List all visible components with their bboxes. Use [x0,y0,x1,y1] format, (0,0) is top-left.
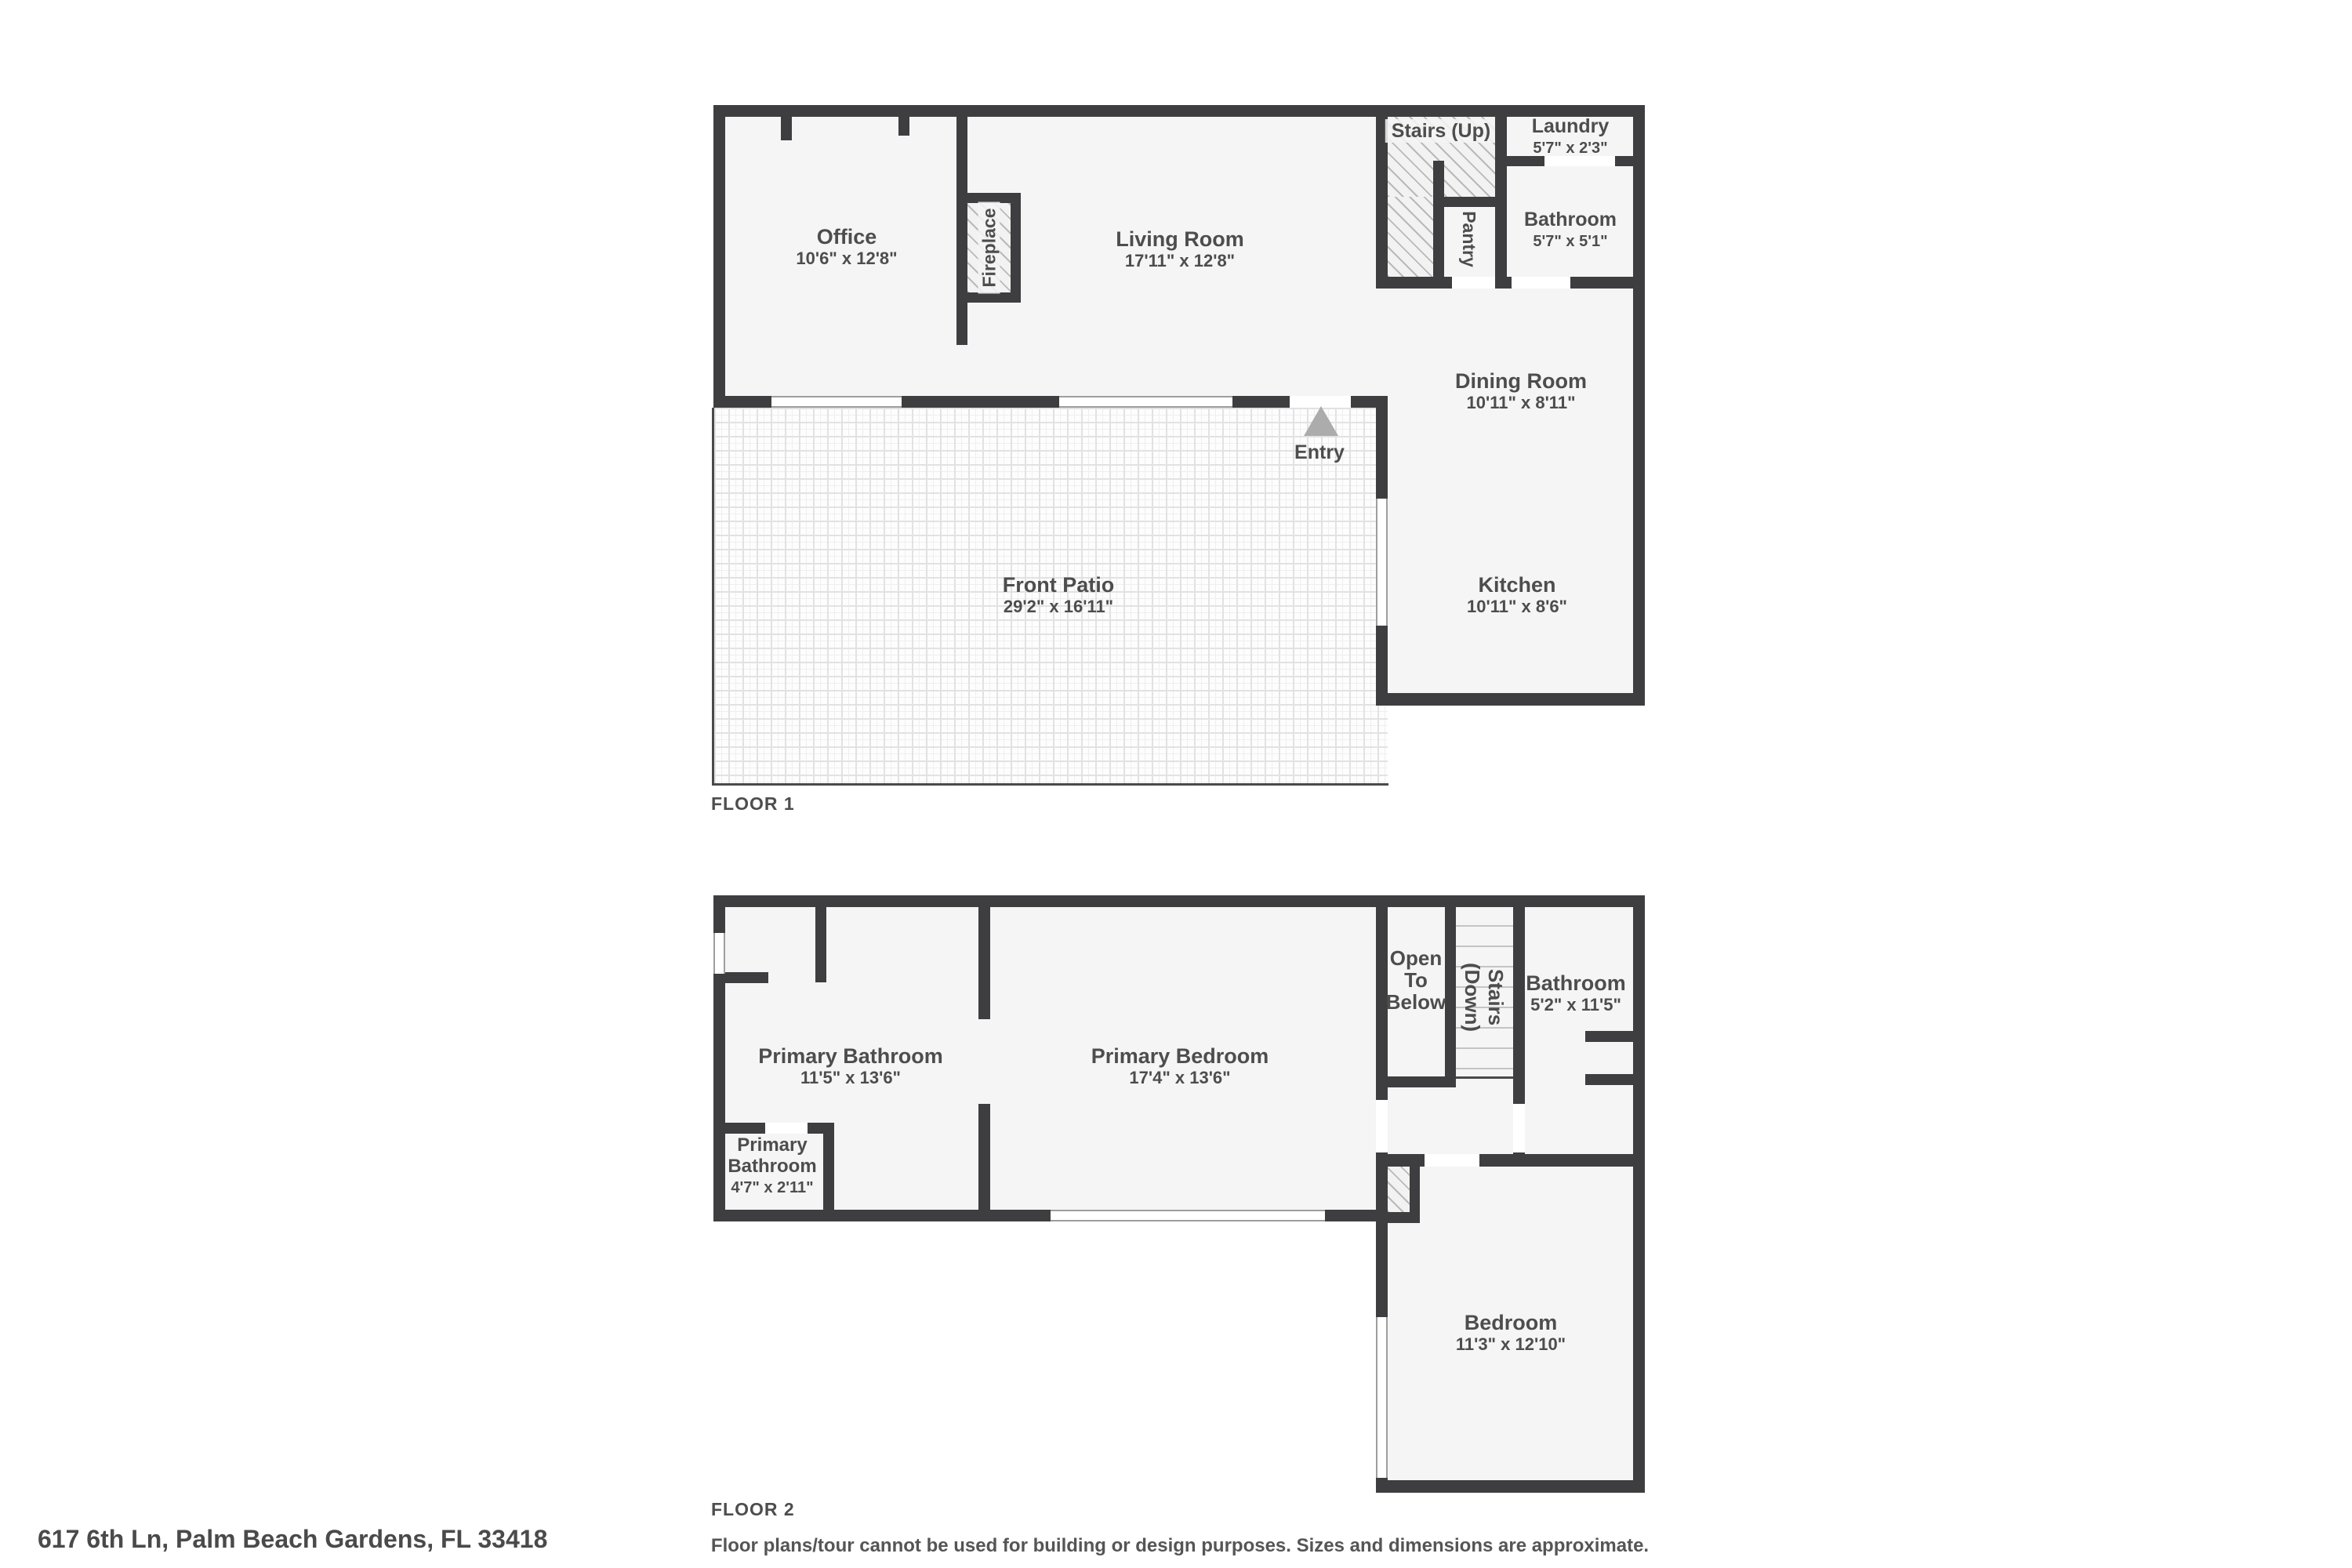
floor1-title: FLOOR 1 [711,793,795,815]
bathroom-door-opening [1512,277,1570,289]
office-name: Office [796,226,897,248]
patio-left-edge [712,408,714,785]
disclaimer-text: Floor plans/tour cannot be used for buil… [711,1535,1649,1557]
wall [1388,1076,1456,1087]
window [771,396,902,408]
window [1376,1317,1388,1478]
kitchen-name: Kitchen [1467,574,1567,596]
wall [815,907,826,982]
bedroom-name: Bedroom [1456,1312,1566,1334]
room-label-kitchen: Kitchen 10'11" x 8'6" [1467,574,1567,618]
wall [713,105,725,408]
wall [1376,1480,1645,1493]
wall [713,974,725,1221]
small-bath-line2: Bathroom [728,1156,816,1177]
stairs-down-line1: Stairs [1484,963,1508,1032]
bedroom-chimney-hatch [1388,1167,1410,1212]
laundry-name: Laundry [1532,115,1610,137]
room-label-office: Office 10'6" x 12'8" [796,226,897,270]
kitchen-dims: 10'11" x 8'6" [1467,596,1567,618]
stairs-bottom-edge [1456,1076,1513,1079]
room-label-bedroom: Bedroom 11'3" x 12'10" [1456,1312,1566,1356]
floor2-title: FLOOR 2 [711,1499,795,1520]
wall [1445,907,1456,1087]
wall [713,895,725,933]
wall [1495,277,1512,289]
wall [1615,156,1633,166]
fireplace-label: Fireplace [979,202,1000,294]
front-patio-dims: 29'2" x 16'11" [1003,596,1115,618]
room-label-bathroom-f1: Bathroom 5'7" x 5'1" [1524,209,1617,252]
entry-arrow-icon [1304,406,1338,436]
bathroom-f2-name: Bathroom [1526,972,1626,994]
otb-line2: To [1386,969,1446,991]
stairs-down-label: Stairs (Down) [1461,963,1508,1032]
bathroom-f2-dims: 5'2" x 11'5" [1526,994,1626,1016]
wall [725,972,768,983]
wall [1376,277,1452,289]
stair-tread [1456,1047,1513,1049]
small-bath-line1: Primary [728,1134,816,1156]
wall [1433,161,1444,277]
window [1051,1210,1325,1221]
stair-tread [1456,925,1513,927]
window [1059,396,1232,408]
primary-bedroom-name: Primary Bedroom [1091,1045,1269,1067]
property-address: 617 6th Ln, Palm Beach Gardens, FL 33418 [38,1525,547,1554]
room-label-laundry: Laundry 5'7" x 2'3" [1532,115,1610,159]
small-bath-door-opening [765,1123,808,1134]
room-label-front-patio: Front Patio 29'2" x 16'11" [1003,574,1115,618]
wall [1633,105,1645,706]
otb-line3: Below [1386,991,1446,1013]
wall [978,1104,990,1221]
wall [1633,895,1645,1493]
front-patio-name: Front Patio [1003,574,1115,596]
fireplace-side [1011,193,1021,303]
room-label-dining-room: Dining Room 10'11" x 8'11" [1455,370,1587,414]
wall [713,396,771,408]
wall [1232,396,1290,408]
stair-tread [1456,946,1513,947]
living-room-dims: 17'11" x 12'8" [1116,250,1244,272]
wall [1570,277,1633,289]
primary-bathroom-dims: 11'5" x 13'6" [758,1067,943,1089]
wall [713,1123,765,1134]
small-bath-dims: 4'7" x 2'11" [728,1177,816,1199]
wall [1479,1154,1645,1167]
room-label-small-primary-bathroom: Primary Bathroom 4'7" x 2'11" [728,1134,816,1199]
room-label-primary-bathroom: Primary Bathroom 11'5" x 13'6" [758,1045,943,1089]
living-room-name: Living Room [1116,228,1244,250]
floorplan-canvas: Fireplace Stairs (Up) Pantry Office 10'6… [0,0,2352,1568]
pantry-door-opening [1452,277,1495,289]
dining-room-dims: 10'11" x 8'11" [1455,392,1587,414]
bedroom-door-opening [1425,1154,1479,1167]
primary-bedroom-door-opening [1376,1100,1388,1152]
patio-kitchen-door [1376,499,1388,626]
wall [713,895,1645,907]
fireplace-label-text: Fireplace [978,202,1000,294]
wall [1585,1031,1633,1042]
wall [956,105,967,345]
bathroom-f1-name: Bathroom [1524,209,1617,230]
otb-line1: Open [1386,947,1446,969]
entry-label: Entry [1294,441,1345,463]
wall [1376,396,1388,499]
pantry-label: Pantry [1457,211,1481,267]
wall [978,907,990,1019]
primary-bedroom-dims: 17'4" x 13'6" [1091,1067,1269,1089]
open-to-below-label: Open To Below [1386,947,1446,1013]
bedroom-dims: 11'3" x 12'10" [1456,1334,1566,1356]
stairs-down-line2: (Down) [1461,963,1484,1032]
stairs-up-label: Stairs (Up) [1385,120,1497,142]
wall [1585,1074,1633,1085]
wall [1513,907,1525,1104]
room-label-living-room: Living Room 17'11" x 12'8" [1116,228,1244,272]
wall [823,1123,834,1221]
wall [1376,626,1388,706]
wall [1376,1152,1388,1317]
laundry-dims: 5'7" x 2'3" [1532,137,1610,159]
wall [1495,105,1507,277]
bathroom-f1-dims: 5'7" x 5'1" [1524,230,1617,252]
stair-tread [1456,1068,1513,1069]
wall [713,1210,1051,1221]
window [713,933,725,974]
wall [1376,1154,1425,1167]
patio-bottom-edge [712,783,1388,786]
wall [781,117,792,140]
room-label-primary-bedroom: Primary Bedroom 17'4" x 13'6" [1091,1045,1269,1089]
stairs-up-label-text: Stairs (Up) [1385,119,1497,143]
primary-bathroom-name: Primary Bathroom [758,1045,943,1067]
office-dims: 10'6" x 12'8" [796,248,897,270]
room-label-bathroom-f2: Bathroom 5'2" x 11'5" [1526,972,1626,1016]
wall [1377,693,1645,706]
wall [898,117,909,136]
bathroom-f2-door-opening [1513,1104,1525,1152]
wall [902,396,1059,408]
wall [1388,1212,1420,1223]
dining-room-name: Dining Room [1455,370,1587,392]
wall [1444,197,1495,207]
stairs-up-hatch [1388,197,1433,277]
